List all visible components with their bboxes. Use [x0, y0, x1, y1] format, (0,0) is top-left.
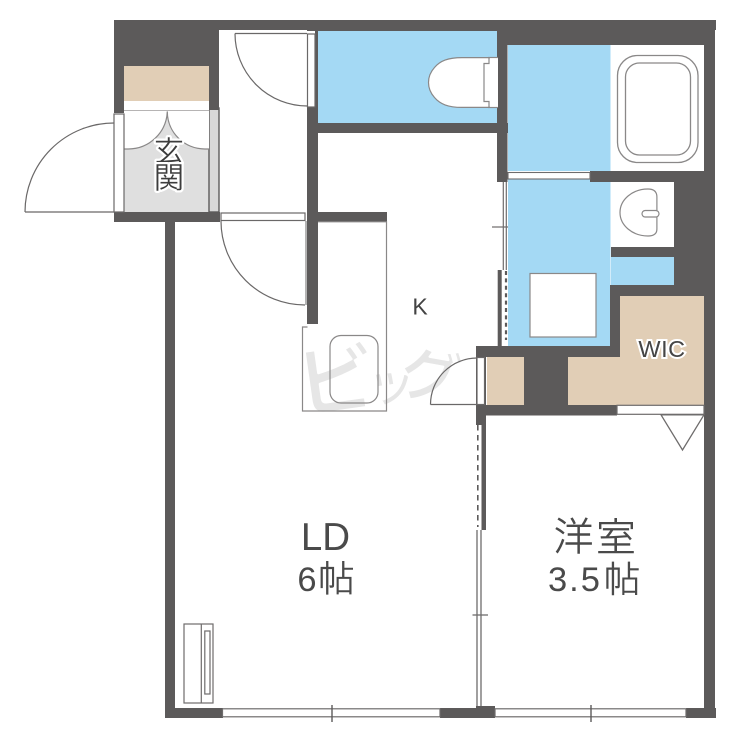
svg-text:LD: LD	[301, 516, 350, 559]
svg-text:6: 6	[297, 561, 316, 599]
svg-text:K: K	[412, 294, 428, 320]
svg-text:3.5: 3.5	[548, 561, 602, 599]
svg-text:WIC: WIC	[638, 336, 685, 362]
